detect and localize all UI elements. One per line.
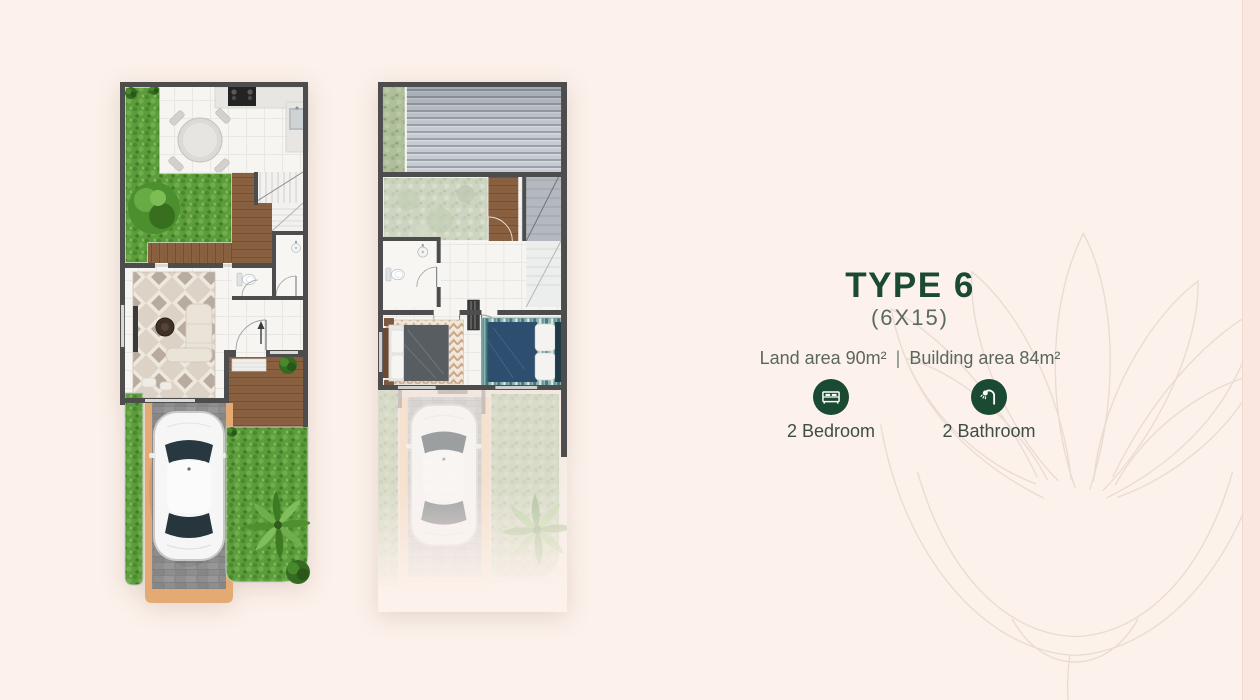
ground-floor-plan bbox=[120, 82, 310, 605]
type-title: TYPE 6 bbox=[744, 268, 1076, 304]
upper-bathroom bbox=[383, 241, 441, 307]
upper-floor-interior bbox=[378, 82, 567, 612]
void-garden-view bbox=[383, 177, 488, 241]
area-divider: | bbox=[896, 348, 901, 368]
slide: TYPE 6 (6X15) Land area 90m²|Building ar… bbox=[0, 0, 1260, 700]
stair-landing bbox=[488, 177, 518, 241]
building-area-text: Building area 84m² bbox=[909, 348, 1060, 368]
bed-icon bbox=[813, 379, 849, 415]
features-row: 2 Bedroom 2 Bathroom bbox=[744, 379, 1076, 442]
roof-section bbox=[383, 87, 561, 172]
car bbox=[149, 411, 229, 561]
shower-icon bbox=[971, 379, 1007, 415]
bathroom-count-label: 2 Bathroom bbox=[942, 421, 1035, 442]
side-terrace-deck bbox=[224, 356, 303, 427]
type-info-panel: TYPE 6 (6X15) Land area 90m²|Building ar… bbox=[744, 268, 1076, 442]
bedroom-feature: 2 Bedroom bbox=[767, 379, 895, 442]
bedroom-count-label: 2 Bedroom bbox=[787, 421, 875, 442]
upper-floor-plan bbox=[378, 82, 567, 612]
bottom-fade bbox=[378, 482, 567, 612]
right-edge-strip bbox=[1242, 0, 1260, 700]
bathroom-feature: 2 Bathroom bbox=[925, 379, 1053, 442]
living-room bbox=[133, 272, 215, 398]
type-dimensions: (6X15) bbox=[744, 306, 1076, 330]
bedroom-left bbox=[383, 318, 464, 388]
bedroom-right bbox=[481, 318, 561, 388]
area-line: Land area 90m²|Building area 84m² bbox=[744, 347, 1076, 369]
upper-staircase bbox=[526, 172, 561, 307]
ground-floor-interior bbox=[120, 82, 310, 603]
land-area-text: Land area 90m² bbox=[760, 348, 887, 368]
